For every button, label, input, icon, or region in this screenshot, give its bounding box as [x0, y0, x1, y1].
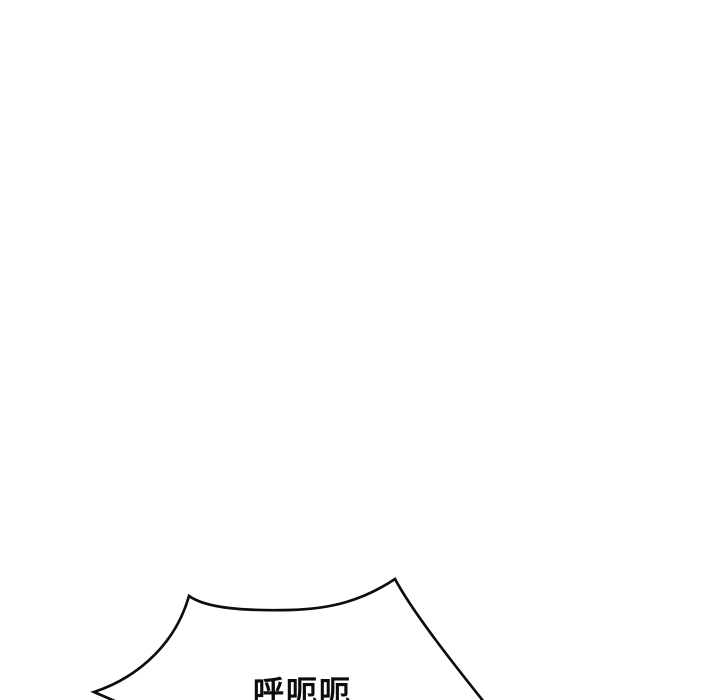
- speech-bubble-outline: [0, 0, 720, 700]
- comic-panel: 呼呃呃: [0, 0, 720, 700]
- speech-bubble-text: 呼呃呃: [253, 677, 352, 700]
